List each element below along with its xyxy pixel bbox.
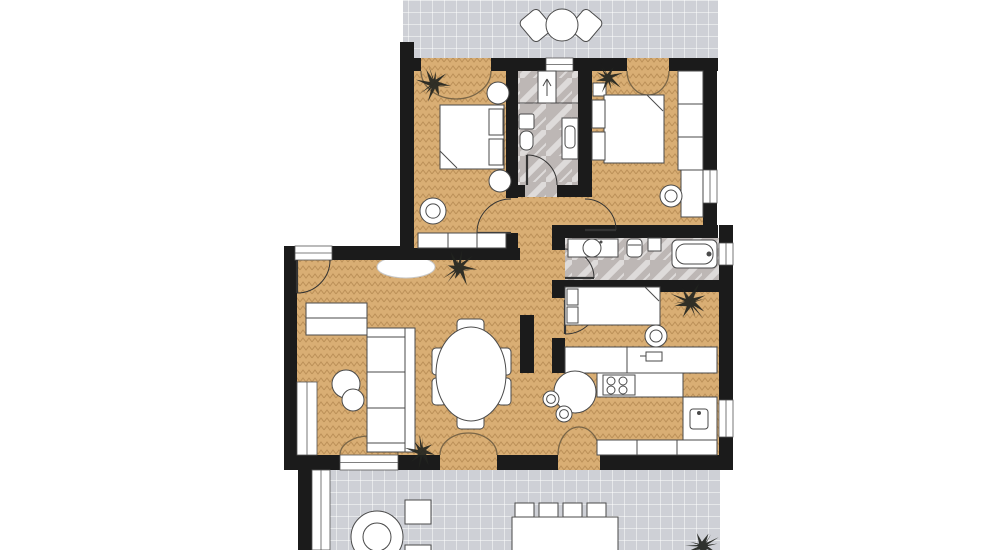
toilet-bowl — [520, 131, 533, 150]
dresser — [418, 233, 506, 248]
desk-chair — [660, 185, 682, 207]
wall — [552, 238, 565, 250]
burner — [607, 386, 615, 394]
threshold — [440, 455, 497, 470]
toilet-tank — [519, 114, 534, 129]
threshold — [558, 455, 600, 470]
outdoor-chair — [539, 503, 558, 517]
patio-table — [546, 9, 578, 41]
bistro-chair — [556, 406, 572, 422]
outdoor-table — [512, 517, 618, 550]
desk-lamp — [646, 352, 662, 361]
wall — [520, 315, 534, 373]
pillow — [567, 289, 578, 305]
wall — [719, 265, 733, 400]
sideboard — [306, 303, 367, 335]
bistro-chair — [543, 391, 559, 407]
threshold — [627, 58, 669, 71]
wall — [414, 248, 520, 260]
dining-table — [436, 327, 506, 421]
sofa — [367, 328, 415, 452]
kitchen-counter-bottom — [597, 440, 717, 455]
wall — [552, 225, 718, 238]
burner — [619, 386, 627, 394]
tap — [600, 241, 603, 244]
wall — [400, 58, 421, 71]
floor-plan — [0, 0, 1000, 550]
bedroom-2-window — [703, 170, 717, 203]
floor-plan-svg — [0, 0, 1000, 550]
washbasin — [583, 239, 601, 257]
washbasin — [565, 126, 575, 148]
wall — [491, 58, 546, 71]
wall — [295, 455, 340, 470]
threshold — [421, 58, 491, 71]
bathroom-2-window — [719, 243, 733, 265]
wall — [552, 338, 565, 373]
desk — [681, 170, 703, 217]
kitchen-window — [719, 400, 733, 437]
bath-tap — [707, 252, 712, 257]
wall — [557, 185, 592, 197]
wall — [298, 470, 312, 550]
nightstand — [593, 83, 606, 96]
wall — [703, 203, 717, 225]
wall — [669, 58, 718, 71]
wardrobe — [678, 71, 703, 170]
wall — [400, 42, 414, 260]
wall — [552, 292, 565, 298]
pillow — [489, 109, 503, 135]
side-table — [405, 545, 431, 550]
lounge-chair-seat — [363, 523, 391, 550]
wall — [284, 246, 297, 470]
side-table — [405, 500, 431, 524]
bed-single — [565, 287, 660, 325]
wall — [578, 58, 592, 197]
wall — [703, 71, 717, 170]
pillow — [592, 100, 605, 128]
sink-tap — [697, 411, 701, 415]
burner — [607, 377, 615, 385]
wall — [332, 246, 414, 260]
toilet — [627, 239, 642, 257]
nightstand — [487, 82, 509, 104]
outdoor-chair — [515, 503, 534, 517]
cistern — [648, 238, 661, 251]
pillow — [592, 132, 605, 160]
wall — [497, 455, 558, 470]
entrance-threshold — [295, 246, 332, 260]
bathroom-window — [546, 58, 573, 71]
desk-long — [565, 347, 717, 373]
pillow — [567, 307, 578, 323]
wall — [600, 455, 733, 470]
nightstand — [489, 170, 511, 192]
pillow — [489, 139, 503, 165]
outdoor-chair — [563, 503, 582, 517]
wall — [719, 225, 733, 243]
living-window — [340, 455, 398, 470]
coffee-table — [342, 389, 364, 411]
bed-double — [604, 95, 664, 163]
armchair — [420, 198, 446, 224]
terrace-railing — [312, 470, 330, 550]
living-side-window — [297, 382, 317, 455]
outdoor-chair — [587, 503, 606, 517]
burner — [619, 377, 627, 385]
desk-chair — [645, 325, 667, 347]
